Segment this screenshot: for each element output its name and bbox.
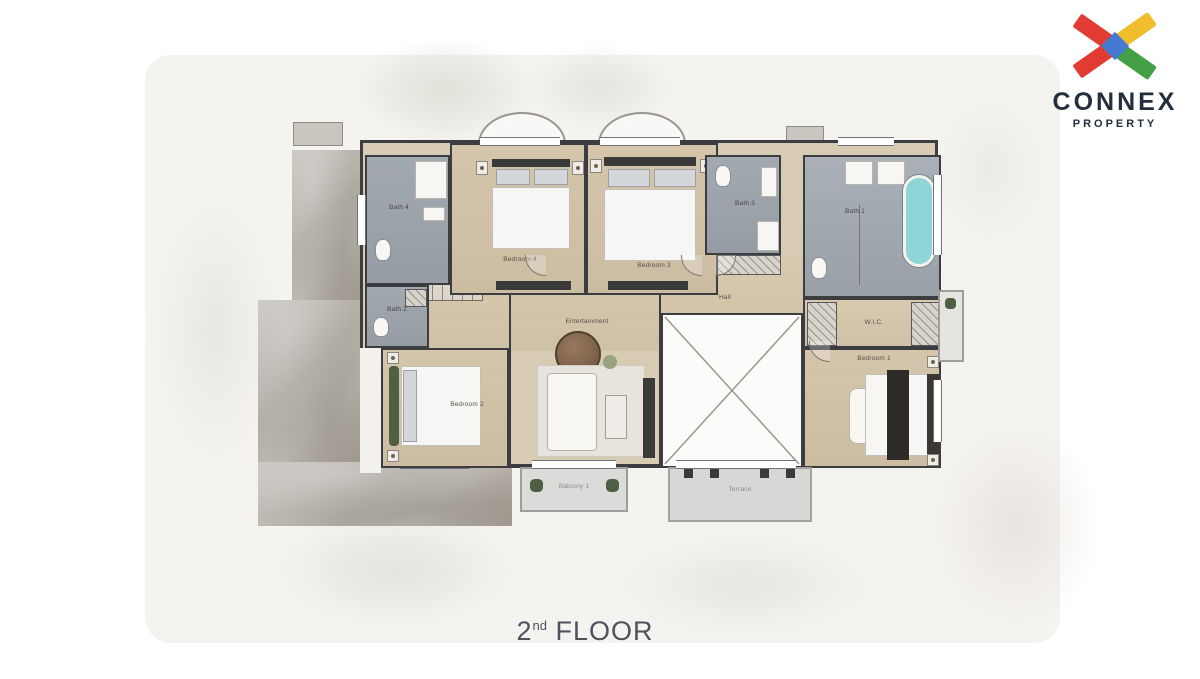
balcony-plant	[945, 298, 956, 309]
bed-duvet	[492, 187, 570, 249]
bed-headboard	[492, 159, 570, 167]
bed-duvet	[604, 189, 696, 261]
nightstand	[572, 161, 584, 175]
room-label-hall: Hall	[685, 295, 765, 302]
window	[838, 137, 894, 146]
sink-vanity	[761, 167, 777, 197]
sink-vanity	[845, 161, 873, 185]
room-bath-4	[365, 155, 450, 285]
shower-partition	[859, 205, 860, 285]
bed-runner	[887, 370, 909, 460]
caption-ordinal: nd	[533, 618, 547, 633]
shower	[405, 289, 427, 307]
balcony-1: Balcony 1	[520, 467, 628, 512]
nightstand	[387, 450, 399, 462]
toilet	[373, 317, 389, 337]
window	[933, 380, 942, 442]
caption-number: 2	[516, 616, 532, 646]
window	[600, 137, 680, 146]
terrace: Terrace	[668, 467, 812, 522]
room-label-wic: W.I.C.	[805, 320, 943, 327]
sofa	[547, 373, 597, 451]
connex-x-icon	[1073, 8, 1157, 84]
canopy-stub	[293, 122, 343, 146]
shower	[415, 161, 447, 199]
bathtub	[903, 175, 935, 267]
room-bath-1: Bath 1	[803, 155, 941, 298]
terrace-label: Terrace	[670, 487, 810, 494]
nightstand	[387, 352, 399, 364]
room-bath-2: Bath 2	[365, 285, 429, 348]
coffee-table	[605, 395, 627, 439]
nightstand	[927, 454, 939, 466]
bed-pillow	[534, 169, 568, 185]
logo-tagline-text: PROPERTY	[1040, 118, 1190, 130]
sliding-door	[676, 460, 796, 469]
tv-console	[643, 378, 655, 458]
floor-caption: 2nd FLOOR	[445, 616, 725, 647]
bed-pillow	[608, 169, 650, 187]
toilet	[811, 257, 827, 279]
room-bedroom-1: Bedroom 1	[803, 348, 941, 468]
room-label-bath4: Bath 4	[369, 205, 429, 212]
sliding-door	[532, 460, 616, 469]
toilet	[715, 165, 731, 187]
bed-pillow	[496, 169, 530, 185]
toilet	[375, 239, 391, 261]
roof-below-left	[258, 300, 362, 464]
room-label-bath2: Bath 2	[367, 307, 427, 314]
tv-console	[496, 281, 571, 290]
void-cross-icon	[663, 315, 801, 466]
bed-pillow	[654, 169, 696, 187]
room-label-bedroom2: Bedroom 2	[383, 402, 511, 409]
room-bedroom-4: Bedroom 4	[450, 143, 586, 295]
nightstand	[590, 159, 602, 173]
room-label-bedroom4: Bedroom 4	[452, 257, 588, 264]
room-label-bath1: Bath 1	[805, 209, 905, 216]
window	[933, 175, 942, 255]
room-bath-3: Bath 3	[705, 155, 781, 255]
room-entertainment: Entertainment	[509, 295, 661, 468]
juliet-balcony	[938, 290, 964, 362]
window	[357, 195, 366, 245]
connex-logo: CONNEX PROPERTY	[1040, 8, 1190, 138]
floor-plan-building: Hall Bath 4 Bedroom 4 Bedroom 3 Bath	[360, 140, 938, 467]
nightstand	[476, 161, 488, 175]
logo-brand-text: CONNEX	[1040, 88, 1190, 117]
room-label-entertainment: Entertainment	[511, 319, 663, 326]
balcony-label: Balcony 1	[522, 484, 626, 491]
plant-pot	[603, 355, 617, 369]
roof-below-bottom-left	[258, 462, 512, 526]
bed-headboard	[604, 157, 696, 166]
shower	[757, 221, 779, 251]
roof-below-top-left	[292, 150, 362, 305]
sink-vanity	[877, 161, 905, 185]
window	[480, 137, 560, 146]
footprint-notch	[360, 348, 381, 473]
void-open-to-below	[661, 313, 803, 468]
room-label-bath3: Bath 3	[707, 201, 783, 208]
room-bedroom-2: Bedroom 2	[381, 348, 509, 468]
caption-word: FLOOR	[556, 616, 654, 646]
tv-console	[608, 281, 688, 290]
